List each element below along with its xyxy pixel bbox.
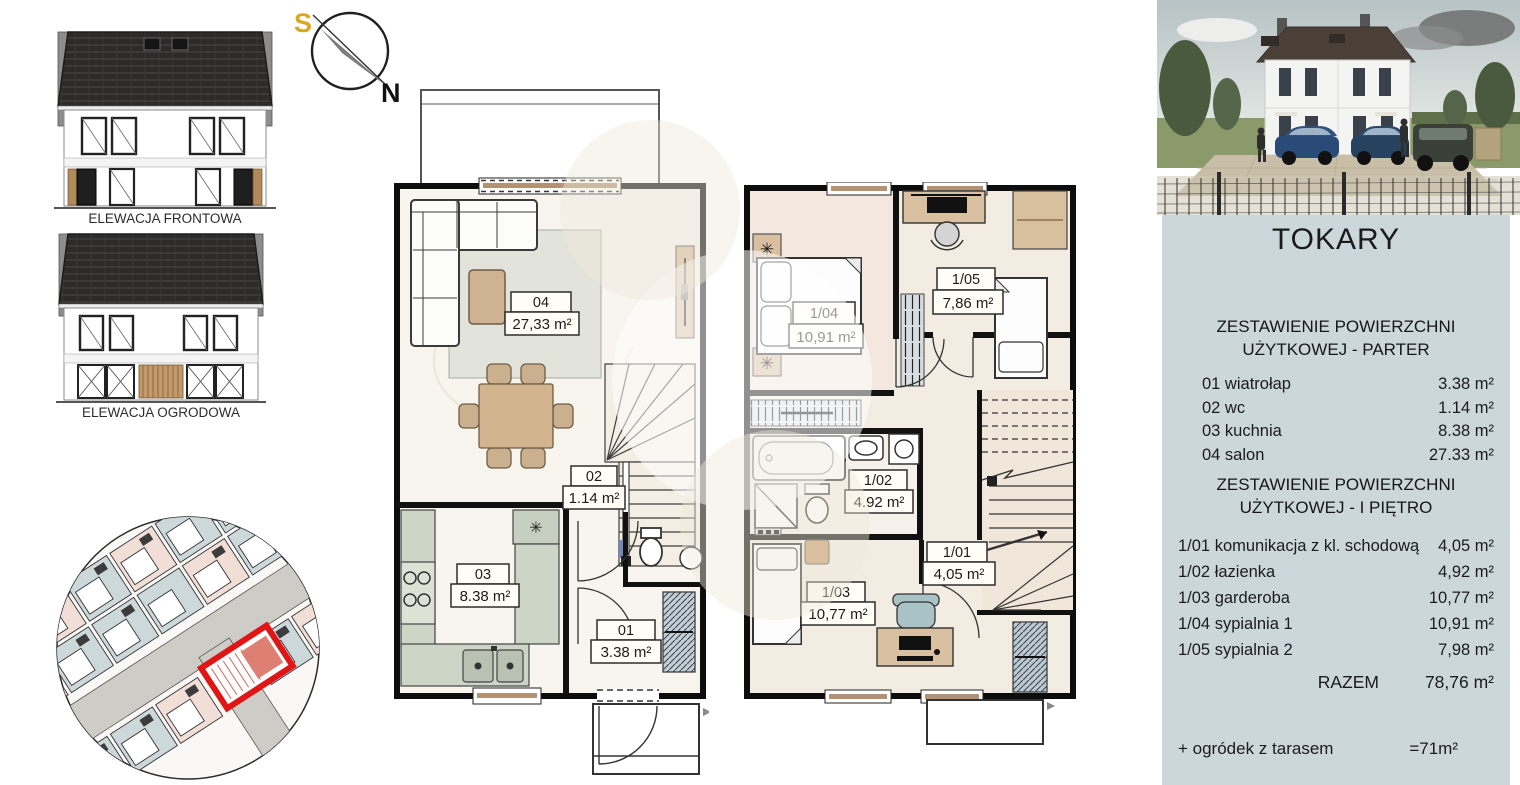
toilet-icon bbox=[805, 484, 829, 523]
project-title: TOKARY bbox=[1162, 223, 1510, 257]
svg-text:✳: ✳ bbox=[760, 354, 774, 373]
house-render-photo bbox=[1157, 0, 1520, 215]
shed bbox=[1475, 128, 1501, 160]
compass-needle-line bbox=[313, 15, 388, 87]
bathtub-icon bbox=[753, 436, 845, 480]
pietro-section-heading: ZESTAWIENIE POWIERZCHNI UŻYTKOWEJ - I PI… bbox=[1162, 473, 1510, 519]
toilet-icon bbox=[640, 528, 662, 566]
washing-machine-icon bbox=[889, 434, 919, 464]
porch-outline bbox=[927, 700, 1043, 744]
area-row: 03 kuchnia 8.38 m² bbox=[1162, 420, 1510, 444]
compass-south-label: S bbox=[294, 8, 312, 38]
front-elevation-drawing: ELEWACJA FRONTOWA bbox=[54, 18, 276, 226]
entry-wardrobe bbox=[663, 592, 695, 672]
svg-text:10,91 m²: 10,91 m² bbox=[796, 329, 855, 346]
area-summary-panel: TOKARY ZESTAWIENIE POWIERZCHNI UŻYTKOWEJ… bbox=[1162, 215, 1510, 785]
svg-text:3.38 m²: 3.38 m² bbox=[601, 644, 652, 661]
parter-section-heading: ZESTAWIENIE POWIERZCHNI UŻYTKOWEJ - PART… bbox=[1162, 315, 1510, 361]
svg-text:1/02: 1/02 bbox=[864, 473, 892, 489]
wardrobe-1-01 bbox=[1013, 622, 1047, 692]
tree bbox=[1475, 62, 1515, 130]
area-row: 1/03 garderoba 10,77 m² bbox=[1162, 585, 1510, 611]
svg-text:✳: ✳ bbox=[760, 240, 774, 259]
roof bbox=[58, 32, 272, 106]
room-label-1-05: 1/05 7,86 m² bbox=[933, 268, 1003, 314]
fence bbox=[1157, 172, 1520, 215]
total-label: RAZEM bbox=[1318, 672, 1379, 693]
svg-text:27,33 m²: 27,33 m² bbox=[512, 316, 571, 333]
area-row: 1/04 sypialnia 1 10,91 m² bbox=[1162, 611, 1510, 637]
bottom-window bbox=[473, 688, 541, 704]
total-value: 78,76 m² bbox=[1425, 672, 1494, 693]
area-row: 02 wc 1.14 m² bbox=[1162, 397, 1510, 421]
roof bbox=[59, 234, 263, 304]
tv-board bbox=[676, 246, 694, 338]
svg-text:4,05 m²: 4,05 m² bbox=[934, 566, 985, 583]
first-floor-plan: ✳ ✳ bbox=[741, 182, 1085, 762]
washbasin-icon bbox=[849, 436, 883, 460]
interior-wall bbox=[563, 502, 569, 694]
room-label-1-04: 1/04 10,91 m² bbox=[789, 302, 863, 348]
garden-value: =71m² bbox=[1409, 739, 1458, 759]
svg-text:1/01: 1/01 bbox=[943, 545, 971, 561]
parter-rows: 01 wiatrołap 3.38 m² 02 wc 1.14 m² 03 ku… bbox=[1162, 373, 1510, 467]
single-bed-1-03 bbox=[753, 544, 801, 644]
svg-text:10,77 m²: 10,77 m² bbox=[808, 606, 867, 623]
front-elevation-label: ELEWACJA FRONTOWA bbox=[88, 211, 241, 226]
svg-text:1/03: 1/03 bbox=[822, 585, 850, 601]
wood-slats bbox=[139, 365, 183, 398]
area-row: 04 salon 27.33 m² bbox=[1162, 444, 1510, 468]
room-label-1-03: 1/03 10,77 m² bbox=[801, 582, 875, 625]
area-row: 01 wiatrołap 3.38 m² bbox=[1162, 373, 1510, 397]
garden-elevation-label: ELEWACJA OGRODOWA bbox=[82, 405, 240, 420]
garden-elevation-drawing: ELEWACJA OGRODOWA bbox=[56, 226, 266, 420]
svg-text:01: 01 bbox=[618, 623, 634, 639]
room-label-1-02: 1/02 4.92 m² bbox=[845, 470, 913, 513]
ground-floor-plan: ✳ bbox=[393, 88, 709, 785]
north-tick bbox=[1047, 702, 1055, 710]
svg-text:02: 02 bbox=[586, 469, 602, 485]
garden-row: + ogródek z tarasem =71m² bbox=[1162, 739, 1510, 759]
pietro-rows: 1/01 komunikacja z kl. schodową 4,05 m² … bbox=[1162, 533, 1510, 663]
nightstand bbox=[805, 540, 829, 564]
room-label-01: 01 3.38 m² bbox=[591, 620, 661, 663]
area-row: 1/01 komunikacja z kl. schodową 4,05 m² bbox=[1162, 533, 1510, 559]
interior-wall bbox=[397, 502, 569, 508]
total-row: RAZEM 78,76 m² bbox=[1162, 672, 1510, 693]
room-label-04: 04 27,33 m² bbox=[505, 292, 579, 335]
room-label-02: 02 1.14 m² bbox=[563, 466, 625, 509]
sliding-terrace-door bbox=[479, 178, 621, 194]
entry-opening bbox=[597, 688, 659, 704]
entry-porch bbox=[593, 704, 709, 774]
room-label-1-01: 1/01 4,05 m² bbox=[923, 542, 995, 585]
area-row: 1/05 sypialnia 2 7,98 m² bbox=[1162, 637, 1510, 663]
svg-text:7,86 m²: 7,86 m² bbox=[943, 295, 994, 312]
room-label-03: 03 8.38 m² bbox=[451, 564, 519, 607]
closet-strip bbox=[751, 400, 861, 426]
area-row: 1/02 łazienka 4,92 m² bbox=[1162, 559, 1510, 585]
hall-wardrobe bbox=[901, 294, 924, 386]
basin-icon bbox=[680, 547, 702, 569]
svg-text:1/04: 1/04 bbox=[810, 306, 838, 322]
site-plan bbox=[42, 512, 334, 784]
chair-icon bbox=[897, 602, 935, 628]
coffee-table bbox=[469, 270, 505, 324]
shower-icon bbox=[755, 484, 797, 535]
garden-label: + ogródek z tarasem bbox=[1178, 739, 1333, 759]
svg-text:1.14 m²: 1.14 m² bbox=[569, 490, 620, 507]
svg-text:4.92 m²: 4.92 m² bbox=[854, 494, 905, 511]
fridge-icon: ✳ bbox=[529, 520, 542, 537]
svg-text:04: 04 bbox=[533, 295, 549, 311]
chair-icon bbox=[935, 222, 959, 246]
svg-text:8.38 m²: 8.38 m² bbox=[460, 588, 511, 605]
tree bbox=[1159, 40, 1211, 136]
floorplan-sheet: ELEWACJA FRONTOWA bbox=[0, 0, 1520, 785]
svg-text:03: 03 bbox=[475, 567, 491, 583]
svg-text:1/05: 1/05 bbox=[952, 272, 980, 288]
compass-icon: S N bbox=[290, 2, 402, 104]
